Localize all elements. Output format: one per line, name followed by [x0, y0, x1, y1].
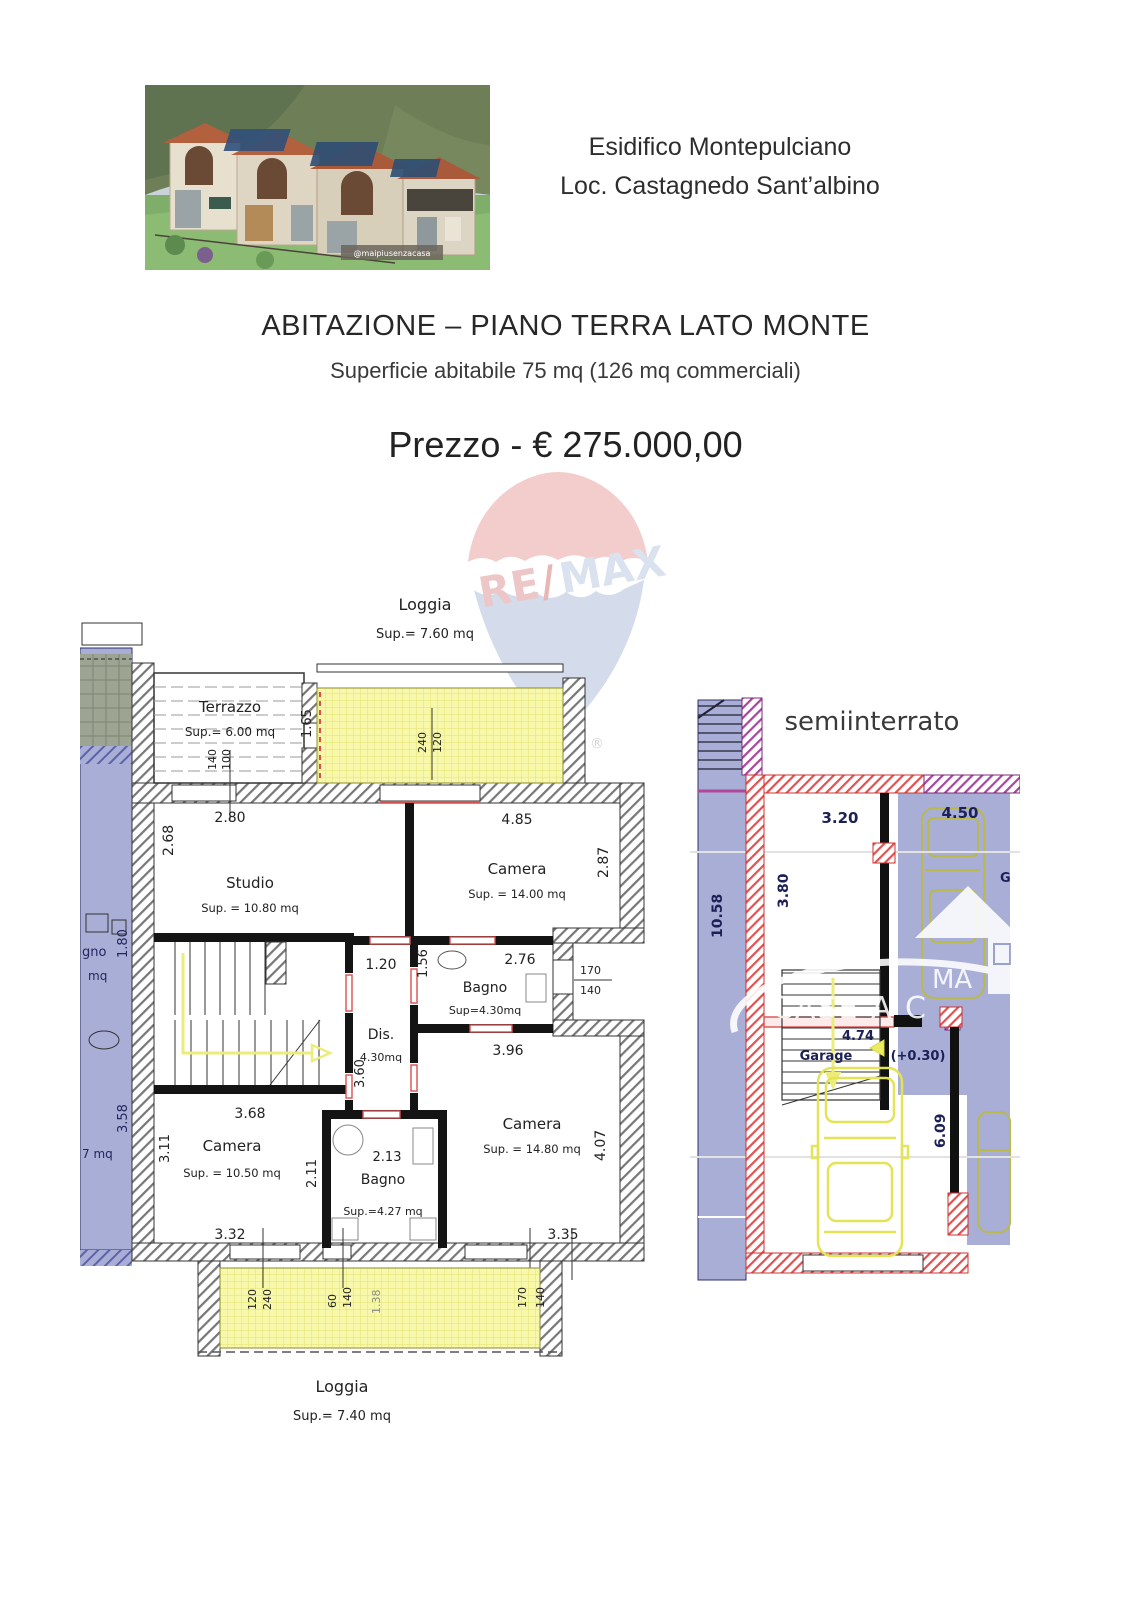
basement-neighbor-strip: [698, 700, 746, 1280]
bagno-bottom-sup: Sup.=4.27 mq: [343, 1205, 422, 1218]
bagno-bottom-label: Bagno: [361, 1172, 406, 1188]
loggia-top-canopy: [317, 664, 563, 672]
house-rendering: @maipiusenzacasa: [145, 85, 490, 270]
photo-bush-1: [165, 235, 185, 255]
stairs-upper-steps: [175, 942, 265, 1015]
window-bottom-3: [465, 1245, 527, 1259]
project-location: Loc. Castagnedo Sant’albino: [500, 167, 940, 206]
header-text: Esidifico Montepulciano Loc. Castagnedo …: [500, 128, 940, 206]
neighbor-width: 4.50: [941, 804, 978, 822]
watermark-house-body: [988, 938, 1016, 994]
camera-left-height: 3.11: [158, 1134, 173, 1163]
dis-width: 1.20: [365, 957, 396, 973]
loggia-bottom-sup: Sup.= 7.40 mq: [293, 1409, 391, 1424]
stairs-path: [183, 953, 312, 1053]
neighbor-height-1058: 10.58: [710, 894, 726, 938]
wall-corridor-left-1: [345, 945, 353, 973]
camera-left-sup: Sup. = 10.50 mq: [183, 1166, 281, 1180]
listing-subtitle: Superficie abitabile 75 mq (126 mq comme…: [0, 358, 1131, 384]
loggia-top-label: Loggia: [399, 595, 452, 614]
terrazzo-win-100: 100: [220, 749, 233, 770]
staircase: 3.68: [175, 942, 330, 1122]
neighbor-mq-part: mq: [88, 969, 107, 983]
loggia-top-nub-2: [302, 748, 317, 783]
wall-bagno-bottom-left: [322, 1110, 331, 1248]
loggia-top-sup: Sup.= 7.60 mq: [376, 627, 474, 642]
window-bagno-top: [553, 960, 573, 994]
bagno-top-height: 1.56: [416, 949, 431, 978]
garage-width: 4.74: [842, 1029, 874, 1044]
bagno-top-win-170: 170: [580, 964, 601, 977]
wall-bagno-bottom-right: [438, 1110, 447, 1248]
wall-purple-top: [924, 775, 1020, 793]
hall-height: 3.80: [776, 873, 792, 908]
window-bottom-1: [230, 1245, 300, 1259]
bagno-bottom-fix-2: [410, 1218, 436, 1240]
studio-label: Studio: [226, 874, 274, 892]
loggia-bottom-win-170b: 170: [516, 1287, 529, 1308]
terrazzo-sup: Sup.= 6.00 mq: [185, 725, 275, 739]
door-bagno-bottom: [363, 1111, 400, 1118]
terrazzo-win-140: 140: [206, 749, 219, 770]
bagno-top-label: Bagno: [463, 980, 508, 996]
watermark-line2: CASE A C: [772, 991, 928, 1026]
bagno-bottom-height: 2.11: [305, 1159, 320, 1188]
camera-right-sup: Sup. = 14.80 mq: [483, 1142, 581, 1156]
loggia-bottom-win-140: 140: [341, 1287, 354, 1308]
photo-bush-3: [256, 251, 274, 269]
garage-elevation: (+0.30): [891, 1049, 946, 1064]
bagno-bottom-wc: [413, 1128, 433, 1164]
neighbor-dim-358: 3.58: [116, 1104, 131, 1133]
loggia-top-win-120: 120: [431, 732, 444, 753]
dis-height: 3.60: [353, 1059, 368, 1088]
basement-plan: semiinterrato 10.58 G: [690, 680, 1020, 1290]
camera-right-label: Camera: [503, 1115, 562, 1133]
neighbor-bagno-part: gno: [82, 945, 106, 960]
wall-right-lower: [620, 1036, 644, 1261]
camera-top-height: 2.87: [596, 847, 612, 878]
loggia-bottom-win-60: 60: [326, 1294, 339, 1308]
listing-price: Prezzo - € 275.000,00: [0, 424, 1131, 466]
garage-room: 4.74 Garage (+0.30) 6.09: [800, 1029, 949, 1256]
bagno-bottom-width: 2.13: [373, 1150, 402, 1165]
project-name: Esidifico Montepulciano: [500, 128, 940, 167]
door-corridor-left-a: [346, 975, 352, 1011]
listing-title: ABITAZIONE – PIANO TERRA LATO MONTE: [0, 310, 1131, 343]
watermark-line1: MA: [932, 965, 972, 995]
neighbor-hatch-band: [80, 746, 132, 764]
wall-corridor-left-2: [345, 1013, 353, 1073]
window-loggia-door: [380, 785, 480, 801]
stairs-dim: 3.68: [234, 1106, 265, 1122]
loggia-bottom-win-120: 120: [246, 1289, 259, 1310]
door-camera-right: [470, 1025, 512, 1032]
wall-step-top: [553, 928, 644, 943]
basement-title: semiinterrato: [785, 707, 960, 737]
photo-bush-2: [197, 247, 213, 263]
camera-left-width: 3.32: [214, 1227, 245, 1243]
camera-right-height: 4.07: [593, 1130, 609, 1161]
dim-terrazzo-width: 2.80: [214, 810, 245, 826]
bagno-top-win-140: 140: [580, 984, 601, 997]
bagno-bottom-shower: [333, 1125, 363, 1155]
hall-width: 3.20: [821, 809, 858, 827]
wall-corridor-right-3: [410, 1093, 418, 1110]
wall-studio-camera: [405, 803, 414, 943]
garage-height: 6.09: [933, 1113, 949, 1148]
camera-top-width: 4.85: [501, 812, 532, 828]
studio-sup: Sup. = 10.80 mq: [201, 901, 299, 915]
loggia-top-win-240: 240: [416, 732, 429, 753]
loggia-top-depth: 1.65: [300, 709, 315, 738]
red-block-mid: [873, 843, 895, 863]
neighbor-garage-blue-lower: [967, 1095, 1010, 1245]
wall-corridor-right-2: [410, 1005, 418, 1063]
garage-wall-right: [950, 1027, 959, 1193]
wall-bottom: [132, 1243, 644, 1261]
photo-caption-text: @maipiusenzacasa: [354, 249, 431, 258]
wall-red-left: [746, 775, 764, 1273]
camera-top-label: Camera: [488, 860, 547, 878]
bagno-bottom-fix-1: [332, 1218, 358, 1240]
neighbor-step: [82, 623, 142, 645]
wall-purple-top-left: [742, 698, 762, 775]
photo-caption-box: @maipiusenzacasa: [341, 245, 443, 260]
camera-left-label: Camera: [203, 1137, 262, 1155]
garage-label: Garage: [800, 1049, 853, 1064]
ground-floor-plan: Loggia Sup.= 7.60 mq gno mq 1.80 3.58 7 …: [80, 588, 665, 1433]
wall-black-hall: [880, 793, 889, 1110]
loggia-bottom-win-140b: 140: [534, 1287, 547, 1308]
loggia-bottom-depth: 1.38: [370, 1290, 383, 1315]
camera-top-sup: Sup. = 14.00 mq: [468, 887, 566, 901]
wall-right-upper: [620, 783, 644, 943]
garage-right-red: [948, 1193, 968, 1235]
bagno-top-width: 2.76: [504, 952, 535, 968]
wall-studio-stairs: [154, 933, 354, 942]
door-corridor-camera-top: [370, 937, 410, 944]
bagno-top-wc: [526, 974, 546, 1002]
neighbor-dim-180: 1.80: [116, 929, 131, 958]
bagno-top-room: 2.76 Bagno Sup=4.30mq 1.56 170 140: [416, 949, 612, 1017]
bagno-top-sup: Sup=4.30mq: [449, 1004, 521, 1017]
door-corridor-right-b: [411, 1065, 417, 1091]
wall-stairs-bottom: [154, 1085, 346, 1094]
bagno-top-sink: [438, 951, 466, 969]
garage-door: [803, 1255, 923, 1271]
wall-corridor-left-3: [345, 1100, 353, 1110]
dis-label: Dis.: [368, 1027, 394, 1043]
wall-left: [132, 663, 154, 1258]
door-corridor-left-b: [346, 1075, 352, 1098]
loggia-top: 1.65 240 120: [300, 664, 585, 783]
garage-car: [812, 1068, 908, 1256]
wall-red-top: [764, 775, 924, 793]
loggia-top-wall-right: [563, 678, 585, 783]
camera-right-width: 3.35: [547, 1227, 578, 1243]
neighbor-garage-label: G: [1000, 871, 1011, 886]
wall-step-bottom: [553, 1020, 644, 1036]
loggia-bottom-win-240: 240: [261, 1289, 274, 1310]
neighbor-dim-7mq: 7 mq: [82, 1147, 113, 1161]
neighbor-bottom-hatch: [80, 1250, 132, 1266]
terrazzo-label: Terrazzo: [198, 698, 261, 716]
door-bagno-top: [450, 937, 495, 944]
stairs-nub: [266, 942, 286, 984]
flyer-page: { "header": { "line1": "Esidifico Montep…: [0, 0, 1131, 1600]
loggia-bottom-label: Loggia: [316, 1377, 369, 1396]
garage-corner-hatch: [940, 1007, 962, 1027]
loggia-bottom-wall-left: [198, 1261, 220, 1356]
camera-right-top-width: 3.96: [492, 1043, 523, 1059]
stairs-arrow: [312, 1045, 330, 1061]
studio-height: 2.68: [161, 825, 177, 856]
window-terrazzo-door: [172, 785, 236, 801]
